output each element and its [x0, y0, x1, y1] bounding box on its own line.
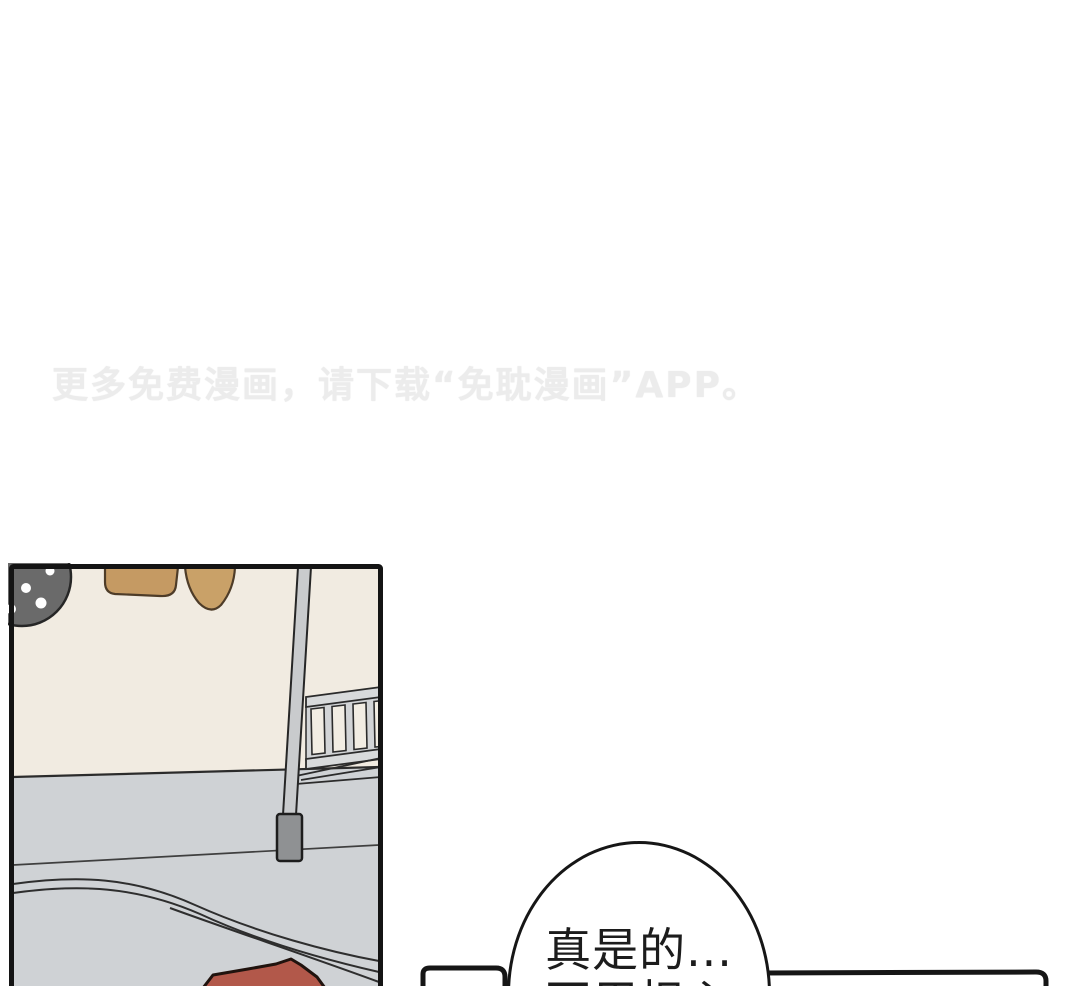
- comic-page: 更多免费漫画，请下载“免耽漫画”APP。: [0, 0, 1080, 986]
- bottom-panel-border-right: [748, 972, 1046, 986]
- speech-line-2: 不用担心: [510, 976, 768, 986]
- tan-object-left: [105, 567, 178, 596]
- speech-bubble: 真是的... 不用担心: [507, 841, 771, 986]
- ball-dot: [21, 583, 31, 593]
- railing-slat: [353, 703, 367, 750]
- ball-dot: [36, 598, 47, 609]
- speech-bubble-text: 真是的... 不用担心: [510, 924, 768, 986]
- room-floor: [13, 768, 379, 986]
- pole-foot: [277, 814, 302, 861]
- watermark-text: 更多免费漫画，请下载“免耽漫画”APP。: [52, 356, 760, 408]
- railing-slat: [332, 705, 346, 752]
- speech-line-1: 真是的...: [510, 924, 768, 976]
- comic-panel-room: [8, 563, 384, 986]
- railing-slat: [311, 708, 325, 755]
- bottom-panel-border-left: [423, 968, 505, 986]
